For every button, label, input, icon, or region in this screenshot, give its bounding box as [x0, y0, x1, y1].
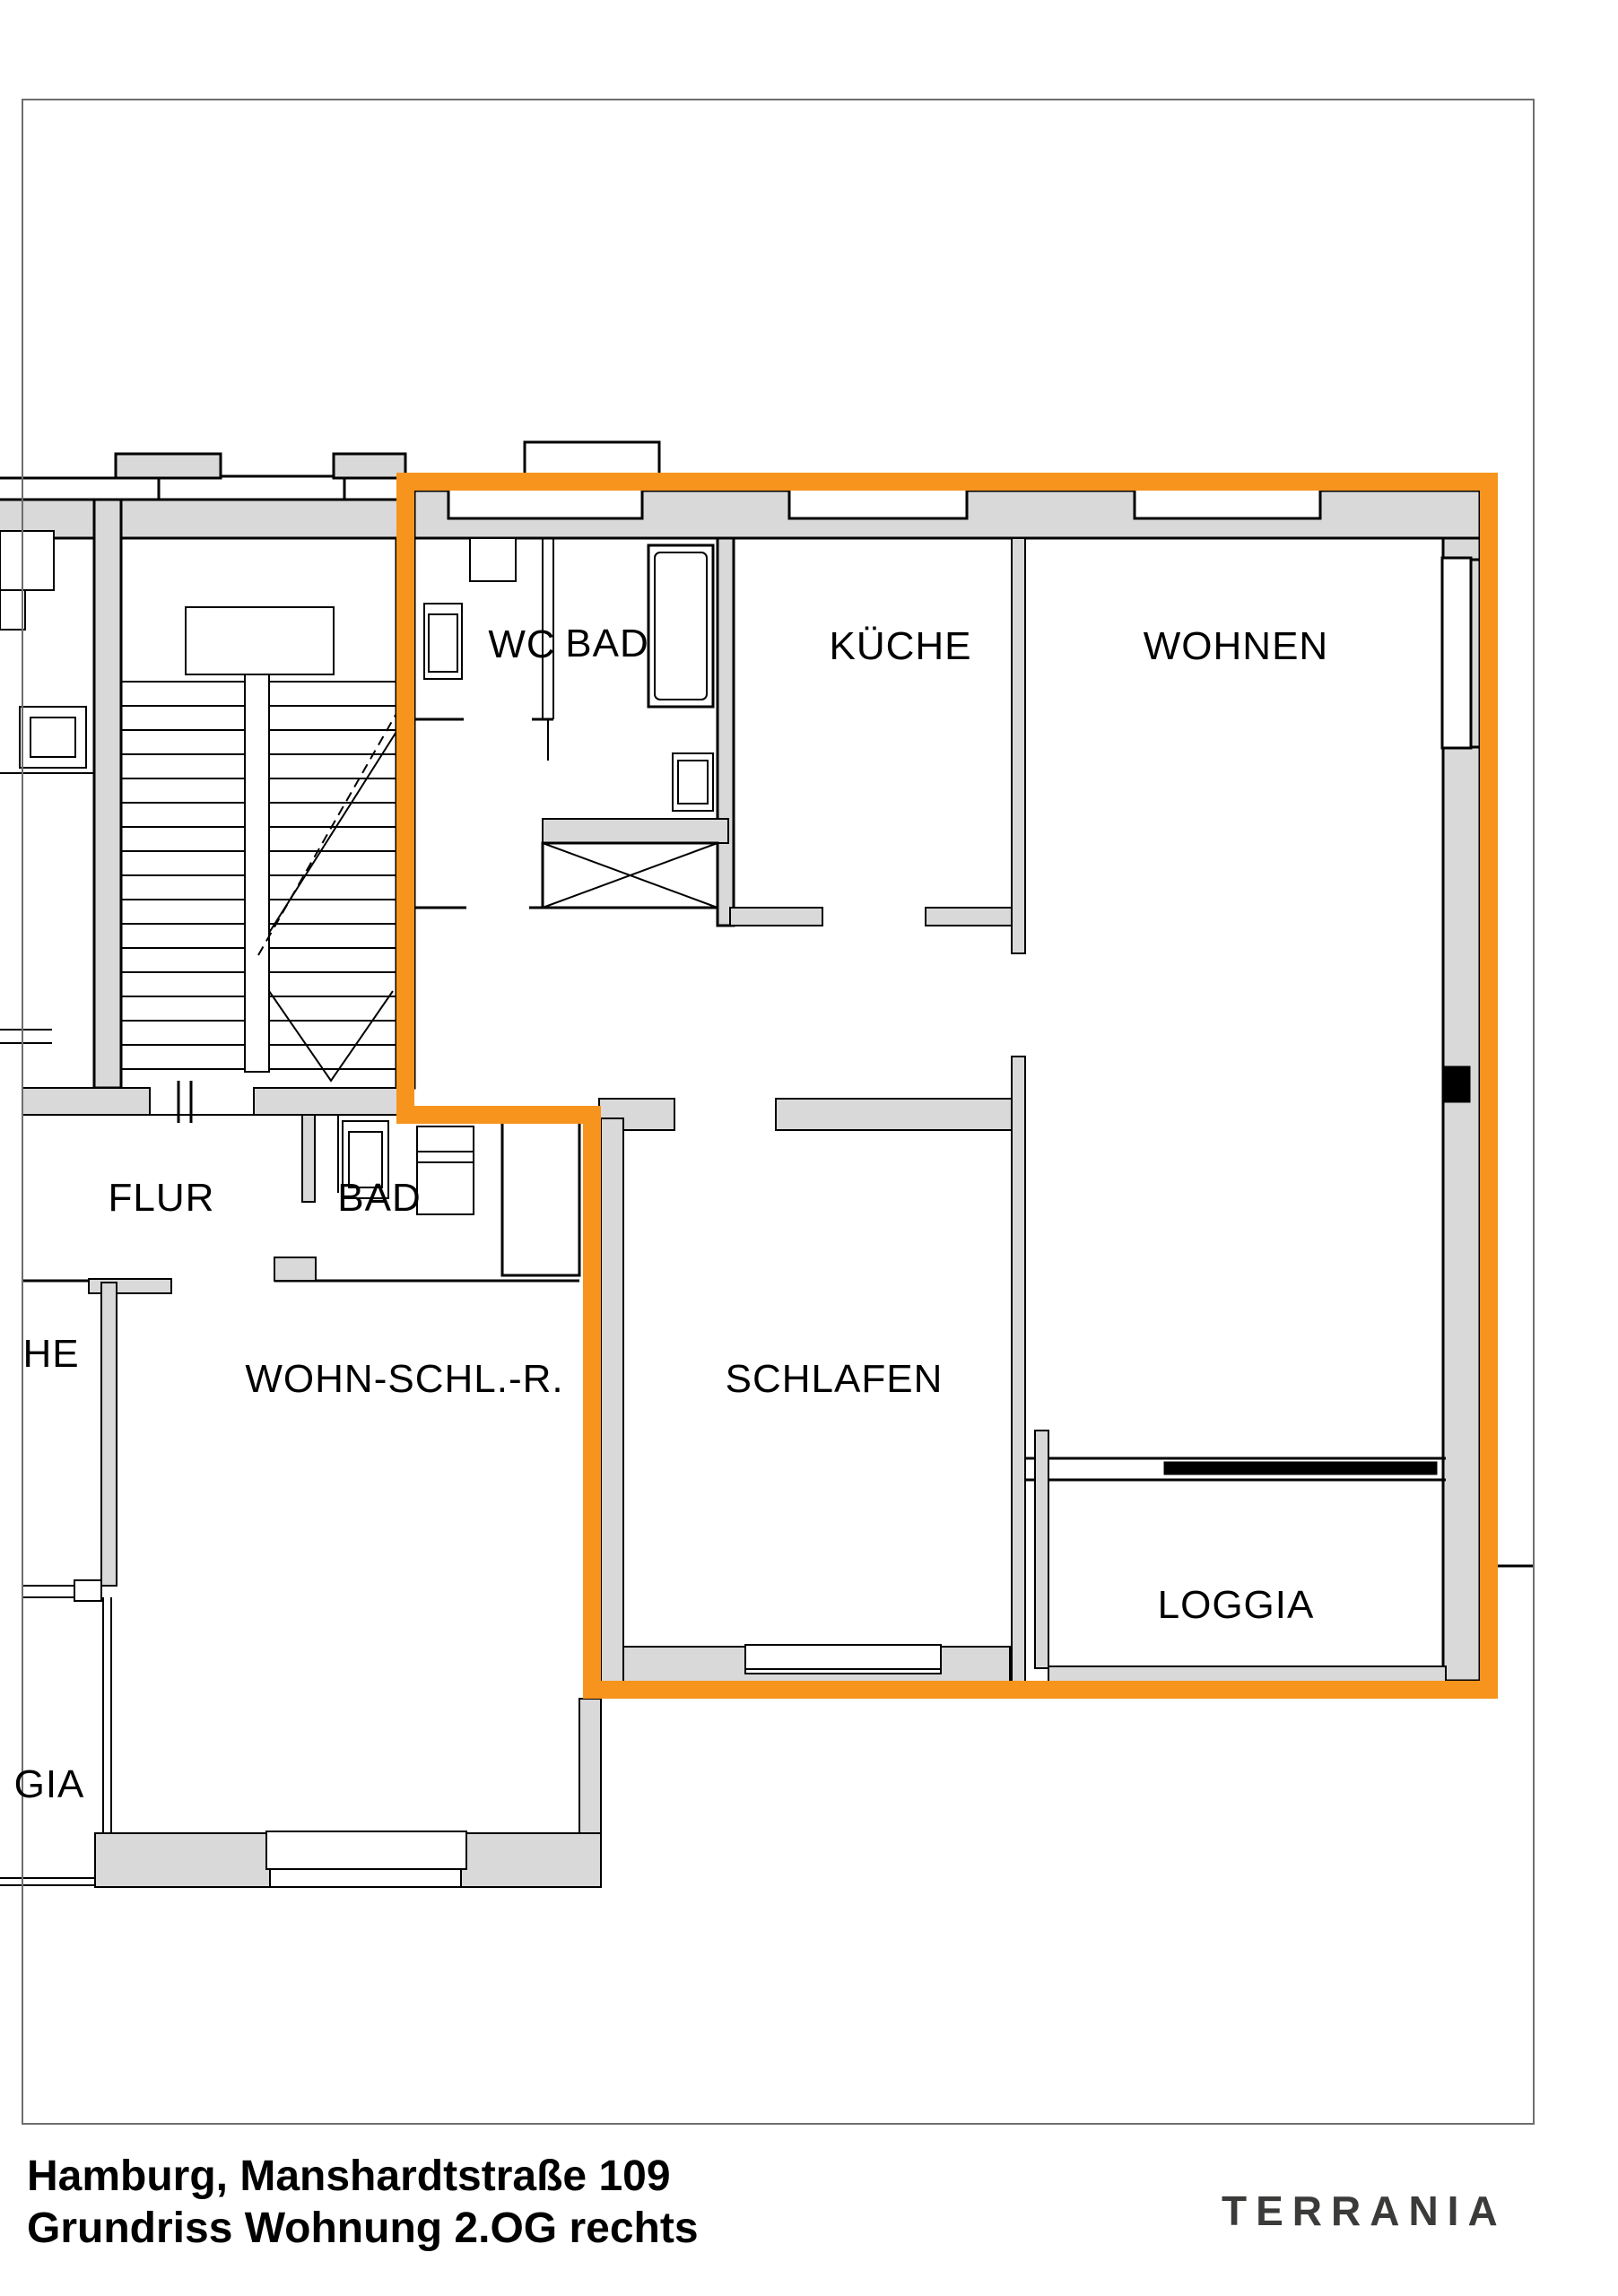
floorplan-page: WC BAD KÜCHE WOHNEN FLUR BAD WOHN-SCHL.-…: [0, 0, 1618, 2296]
room-label-bad-upper: BAD: [565, 622, 648, 666]
room-label-kueche-clipped: HE: [22, 1332, 79, 1377]
room-label-loggia: LOGGIA: [1158, 1583, 1315, 1628]
shower-icon: [502, 1121, 579, 1275]
kueche-left-wall: [718, 538, 734, 926]
neighbor-lower-apartment: [0, 1088, 601, 1887]
room-label-wc: WC: [488, 622, 555, 667]
room-label-loggia-clipped: GIA: [14, 1762, 85, 1807]
stair-stringer: [245, 674, 269, 1072]
washbasin-icon: [417, 1126, 474, 1214]
neighbor-left-fragments: [0, 531, 94, 1043]
room-label-wohnen: WOHNEN: [1144, 624, 1328, 669]
stair-landing: [186, 607, 334, 674]
loggia-partition: [1035, 1431, 1048, 1668]
room-label-schlafen: SCHLAFEN: [726, 1357, 944, 1402]
footer-address: Hamburg, Manshardtstraße 109: [27, 2151, 699, 2203]
staircase: [94, 500, 414, 1123]
terrania-logo: TERRANIA: [1222, 2187, 1507, 2235]
schlafen-left-wall: [601, 1118, 623, 1683]
wall-hatch-block: [1443, 1067, 1469, 1101]
room-label-bad-lower: BAD: [337, 1176, 421, 1221]
floorplan-drawing: [0, 0, 1618, 2296]
bad-bottom-wall: [543, 819, 728, 843]
loggia-door-window: [1164, 1462, 1437, 1474]
cistern-icon: [470, 538, 516, 581]
room-label-kueche: KÜCHE: [829, 624, 971, 669]
neighbor-window: [266, 1831, 466, 1869]
bathroom-fixtures: [424, 538, 713, 811]
room-label-wohn-schl-r: WOHN-SCHL.-R.: [245, 1357, 563, 1402]
footer-caption: Hamburg, Manshardtstraße 109 Grundriss W…: [27, 2151, 699, 2255]
kueche-wohnen-divider: [1012, 538, 1025, 953]
kueche-divider-neighbor: [101, 1283, 117, 1586]
schlafen-wohnen-divider: [1012, 1057, 1025, 1698]
room-label-flur: FLUR: [109, 1176, 215, 1221]
footer-plan-title: Grundriss Wohnung 2.OG rechts: [27, 2203, 699, 2255]
loggia-parapet: [1048, 1666, 1446, 1683]
stair-arrow: [269, 991, 393, 1081]
shaft-icon: [543, 843, 718, 908]
